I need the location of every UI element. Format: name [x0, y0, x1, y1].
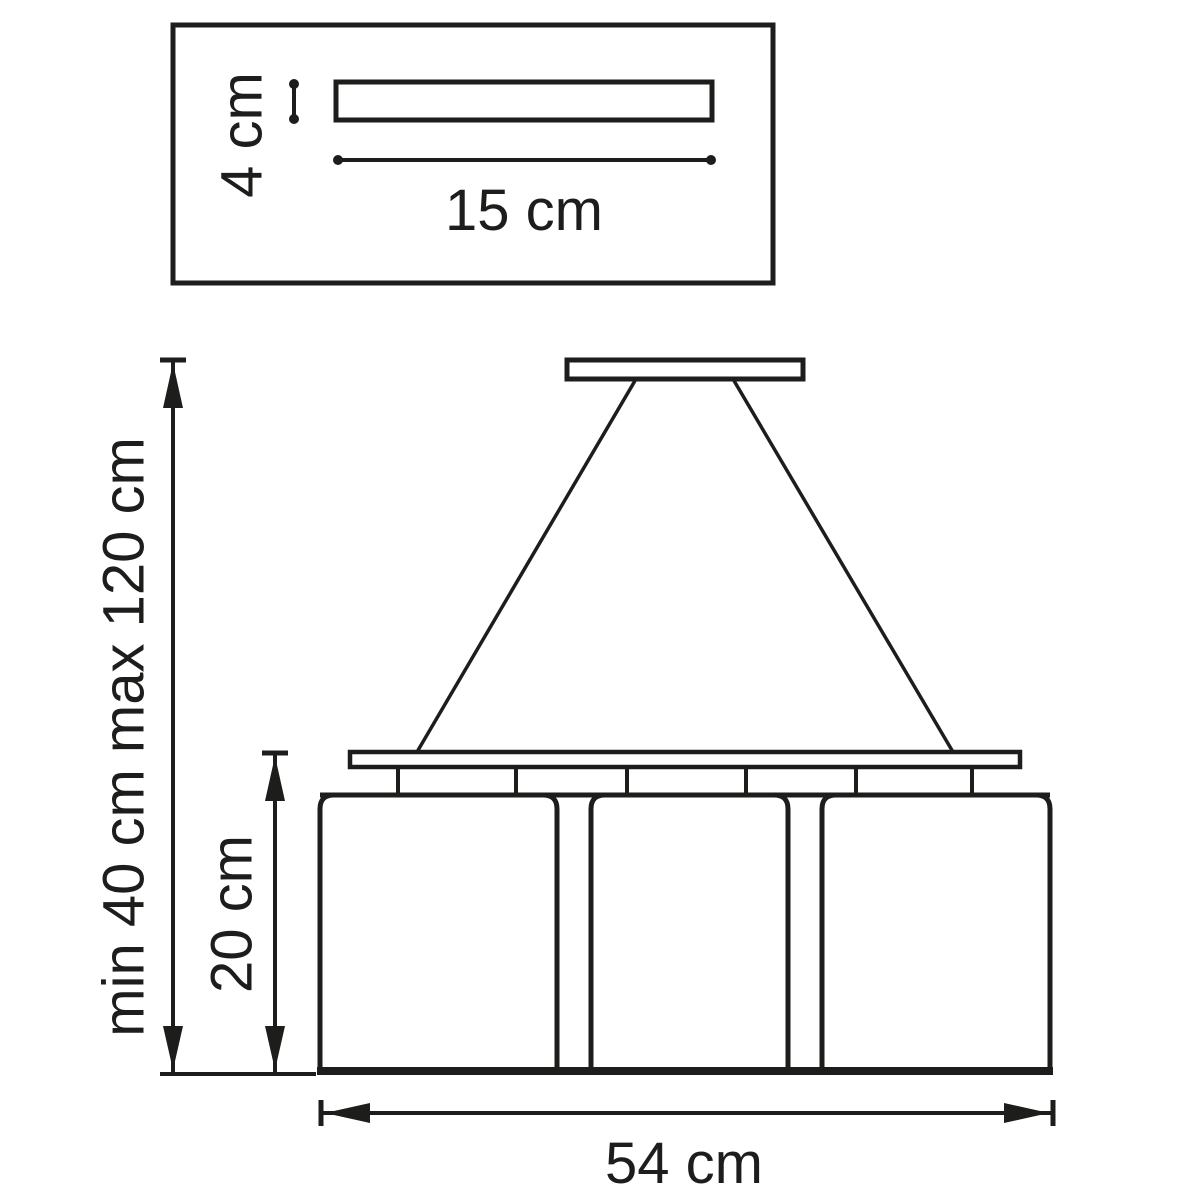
arrowhead-right: [1004, 1103, 1049, 1123]
shade-stems: [398, 767, 972, 795]
pendant-lamp-dimension-diagram: 4 cm 15 cm: [0, 0, 1200, 1200]
ceiling-plate: [567, 360, 803, 379]
dim-dot: [706, 155, 716, 165]
suspension-height-label: min 40 cm max 120 cm: [91, 437, 156, 1037]
shade-center: [591, 795, 788, 1071]
canopy-plate-front-view: [336, 82, 712, 120]
shade-height-label: 20 cm: [199, 835, 264, 993]
arrowhead-up: [265, 756, 285, 801]
canopy-width-dimension: 15 cm: [333, 155, 716, 243]
shade-right: [822, 795, 1050, 1071]
dim-dot: [289, 114, 299, 124]
arrowhead-down: [265, 1026, 285, 1070]
dim-dot: [333, 155, 343, 165]
dimension-drawing: 4 cm 15 cm: [0, 0, 1200, 1200]
lamp-elevation: [317, 360, 1053, 1071]
dim-dot: [289, 79, 299, 89]
canopy-height-dimension: 4 cm: [209, 72, 299, 198]
canopy-height-label: 4 cm: [209, 72, 274, 198]
shade-left: [320, 795, 557, 1071]
arrowhead-left: [325, 1103, 370, 1123]
fixture-width-dimension: 54 cm: [321, 1100, 1053, 1196]
canopy-width-label: 15 cm: [445, 178, 603, 243]
suspension-wire-left: [417, 379, 636, 752]
canopy-inset: 4 cm 15 cm: [173, 25, 773, 283]
support-bar: [350, 752, 1020, 767]
arrowhead-down: [163, 1026, 183, 1070]
suspension-wire-right: [733, 379, 953, 752]
arrowhead-up: [163, 363, 183, 408]
shade-height-dimension: 20 cm: [199, 753, 288, 1072]
fixture-width-label: 54 cm: [605, 1131, 763, 1196]
